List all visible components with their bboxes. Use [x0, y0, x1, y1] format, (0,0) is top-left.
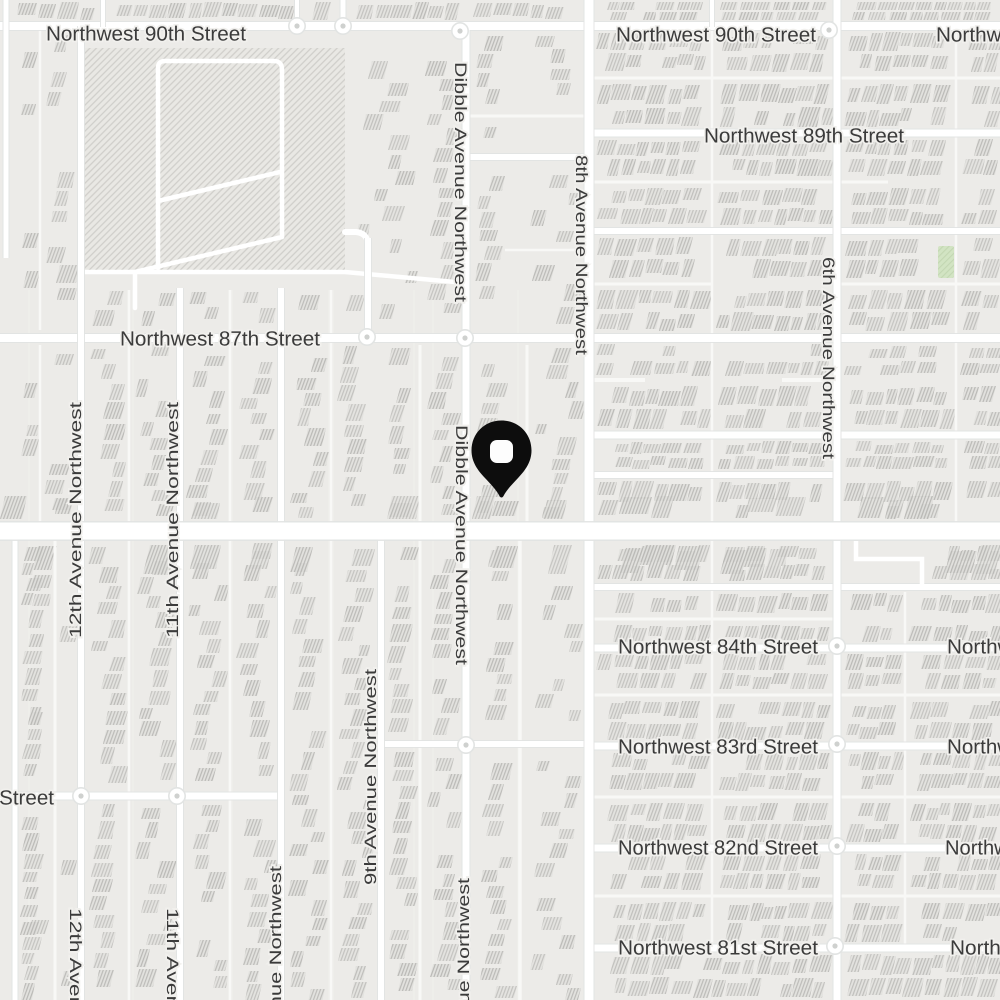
svg-text:12th Avenue Northwest: 12th Avenue Northwest [67, 401, 85, 638]
svg-text:Northwest 81st Street: Northwest 81st Street [618, 936, 818, 959]
svg-text:Northwest 89th Street: Northwest 89th Street [704, 124, 904, 147]
svg-text:Dibble Avenue Northwest: Dibble Avenue Northwest [452, 425, 470, 666]
svg-text:11th Avenue Northwest: 11th Avenue Northwest [164, 401, 182, 638]
svg-text:12th Avenue Northwest: 12th Avenue Northwest [66, 908, 84, 1000]
svg-text:Northwest 83rd Street: Northwest 83rd Street [0, 786, 54, 809]
svg-text:10th Avenue Northwest: 10th Avenue Northwest [267, 865, 285, 1000]
svg-text:Dibble Avenue Northwest: Dibble Avenue Northwest [451, 62, 469, 303]
svg-text:6th Avenue Northwest: 6th Avenue Northwest [819, 257, 837, 460]
svg-text:Northwest 90th Street: Northwest 90th Street [616, 23, 816, 46]
svg-text:Northwest 84th Street: Northwest 84th Street [618, 635, 818, 658]
svg-text:9th Avenue Northwest: 9th Avenue Northwest [362, 668, 380, 885]
svg-text:Northwest 82nd Street: Northwest 82nd Street [618, 836, 818, 859]
svg-text:Northwest 82nd Street: Northwest 82nd Street [945, 837, 1000, 860]
svg-text:Northwest 87th Street: Northwest 87th Street [120, 327, 320, 350]
svg-text:8th Avenue Northwest: 8th Avenue Northwest [572, 155, 590, 356]
svg-text:Northwest 90th Street: Northwest 90th Street [936, 24, 1000, 47]
svg-text:11th Avenue Northwest: 11th Avenue Northwest [163, 908, 181, 1000]
svg-text:Northwest 83rd Street: Northwest 83rd Street [618, 735, 818, 758]
svg-text:Northwest 84th Street: Northwest 84th Street [947, 636, 1000, 659]
svg-text:Dibble Avenue Northwest: Dibble Avenue Northwest [455, 877, 473, 1000]
svg-text:Northwest 83rd Street: Northwest 83rd Street [947, 736, 1000, 759]
svg-text:Northwest 90th Street: Northwest 90th Street [46, 22, 246, 45]
svg-text:Northwest 81st Street: Northwest 81st Street [950, 937, 1000, 960]
